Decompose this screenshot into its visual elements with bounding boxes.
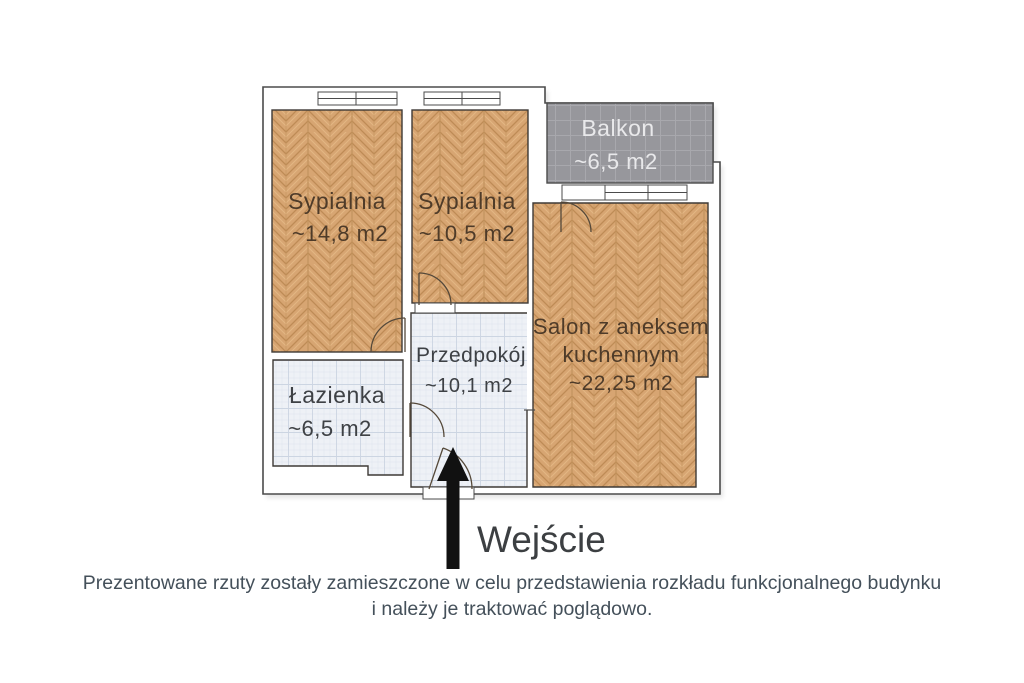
balcony-door-sill [562,185,605,200]
label-bathroom-name: Łazienka [289,382,385,408]
label-balcony-name: Balkon [581,115,654,141]
label-hallway-area: ~10,1 m2 [425,375,513,397]
label-bedroom-1-area: ~14,8 m2 [292,221,388,246]
label-bedroom-2-name: Sypialnia [418,188,516,214]
window-bedroom-2 [424,92,500,105]
label-balcony-area: ~6,5 m2 [574,149,658,174]
label-hallway-name: Przedpokój [416,344,526,367]
label-bedroom-1-name: Sypialnia [288,188,386,214]
label-living-area: ~22,25 m2 [569,372,673,395]
entrance-label: Wejście [477,519,606,560]
label-living-name-1: Salon z aneksem [533,314,709,339]
bedroom-2-door-sill [415,303,455,313]
room-hallway-floor [411,313,527,487]
floor-plan-page: Sypialnia ~14,8 m2 Sypialnia ~10,5 m2 Ba… [0,0,1024,683]
footer-line-1: Prezentowane rzuty zostały zamieszczone … [83,572,941,594]
label-bedroom-2-area: ~10,5 m2 [419,221,515,246]
floor-plan-canvas: Sypialnia ~14,8 m2 Sypialnia ~10,5 m2 Ba… [0,0,1024,683]
label-living-name-2: kuchennym [562,342,679,367]
window-bedroom-1 [318,92,397,105]
window-living-balcony [605,185,687,200]
footer-line-2: i należy je traktować poglądowo. [372,598,653,620]
label-bathroom-area: ~6,5 m2 [288,416,372,441]
